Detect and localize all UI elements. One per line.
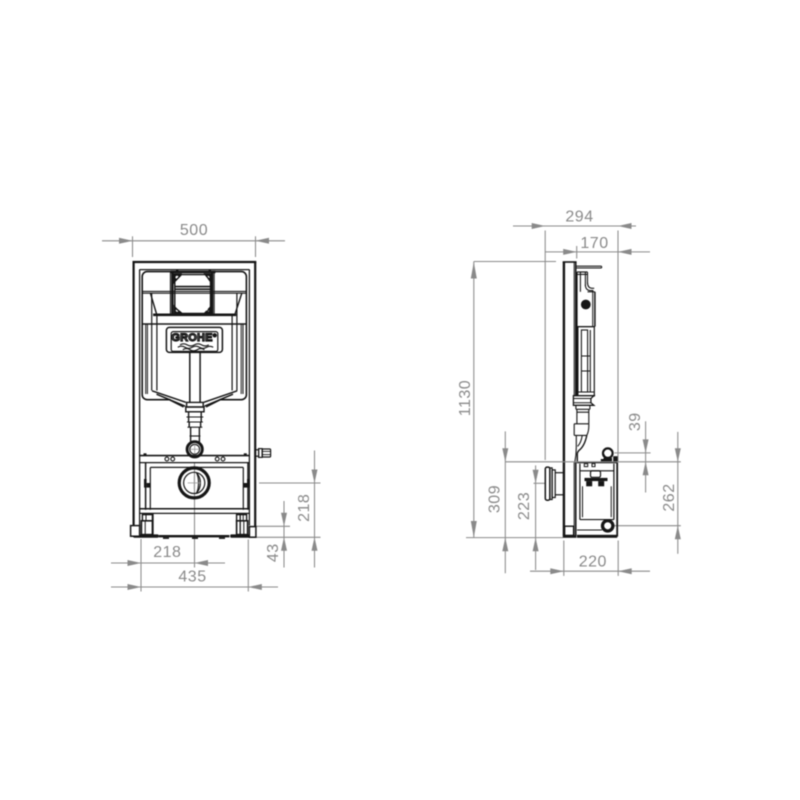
svg-text:500: 500 xyxy=(180,222,208,239)
svg-text:435: 435 xyxy=(178,569,206,586)
svg-text:GROHE: GROHE xyxy=(171,332,212,344)
svg-text:223: 223 xyxy=(516,492,533,520)
svg-text:262: 262 xyxy=(661,483,678,511)
svg-text:39: 39 xyxy=(627,412,644,431)
svg-text:294: 294 xyxy=(565,208,593,225)
svg-text:309: 309 xyxy=(487,485,504,513)
svg-text:43: 43 xyxy=(265,543,282,562)
svg-text:170: 170 xyxy=(580,235,608,252)
svg-text:218: 218 xyxy=(296,494,313,522)
svg-text:220: 220 xyxy=(579,553,607,570)
svg-text:218: 218 xyxy=(153,544,181,561)
svg-text:1130: 1130 xyxy=(457,380,474,416)
